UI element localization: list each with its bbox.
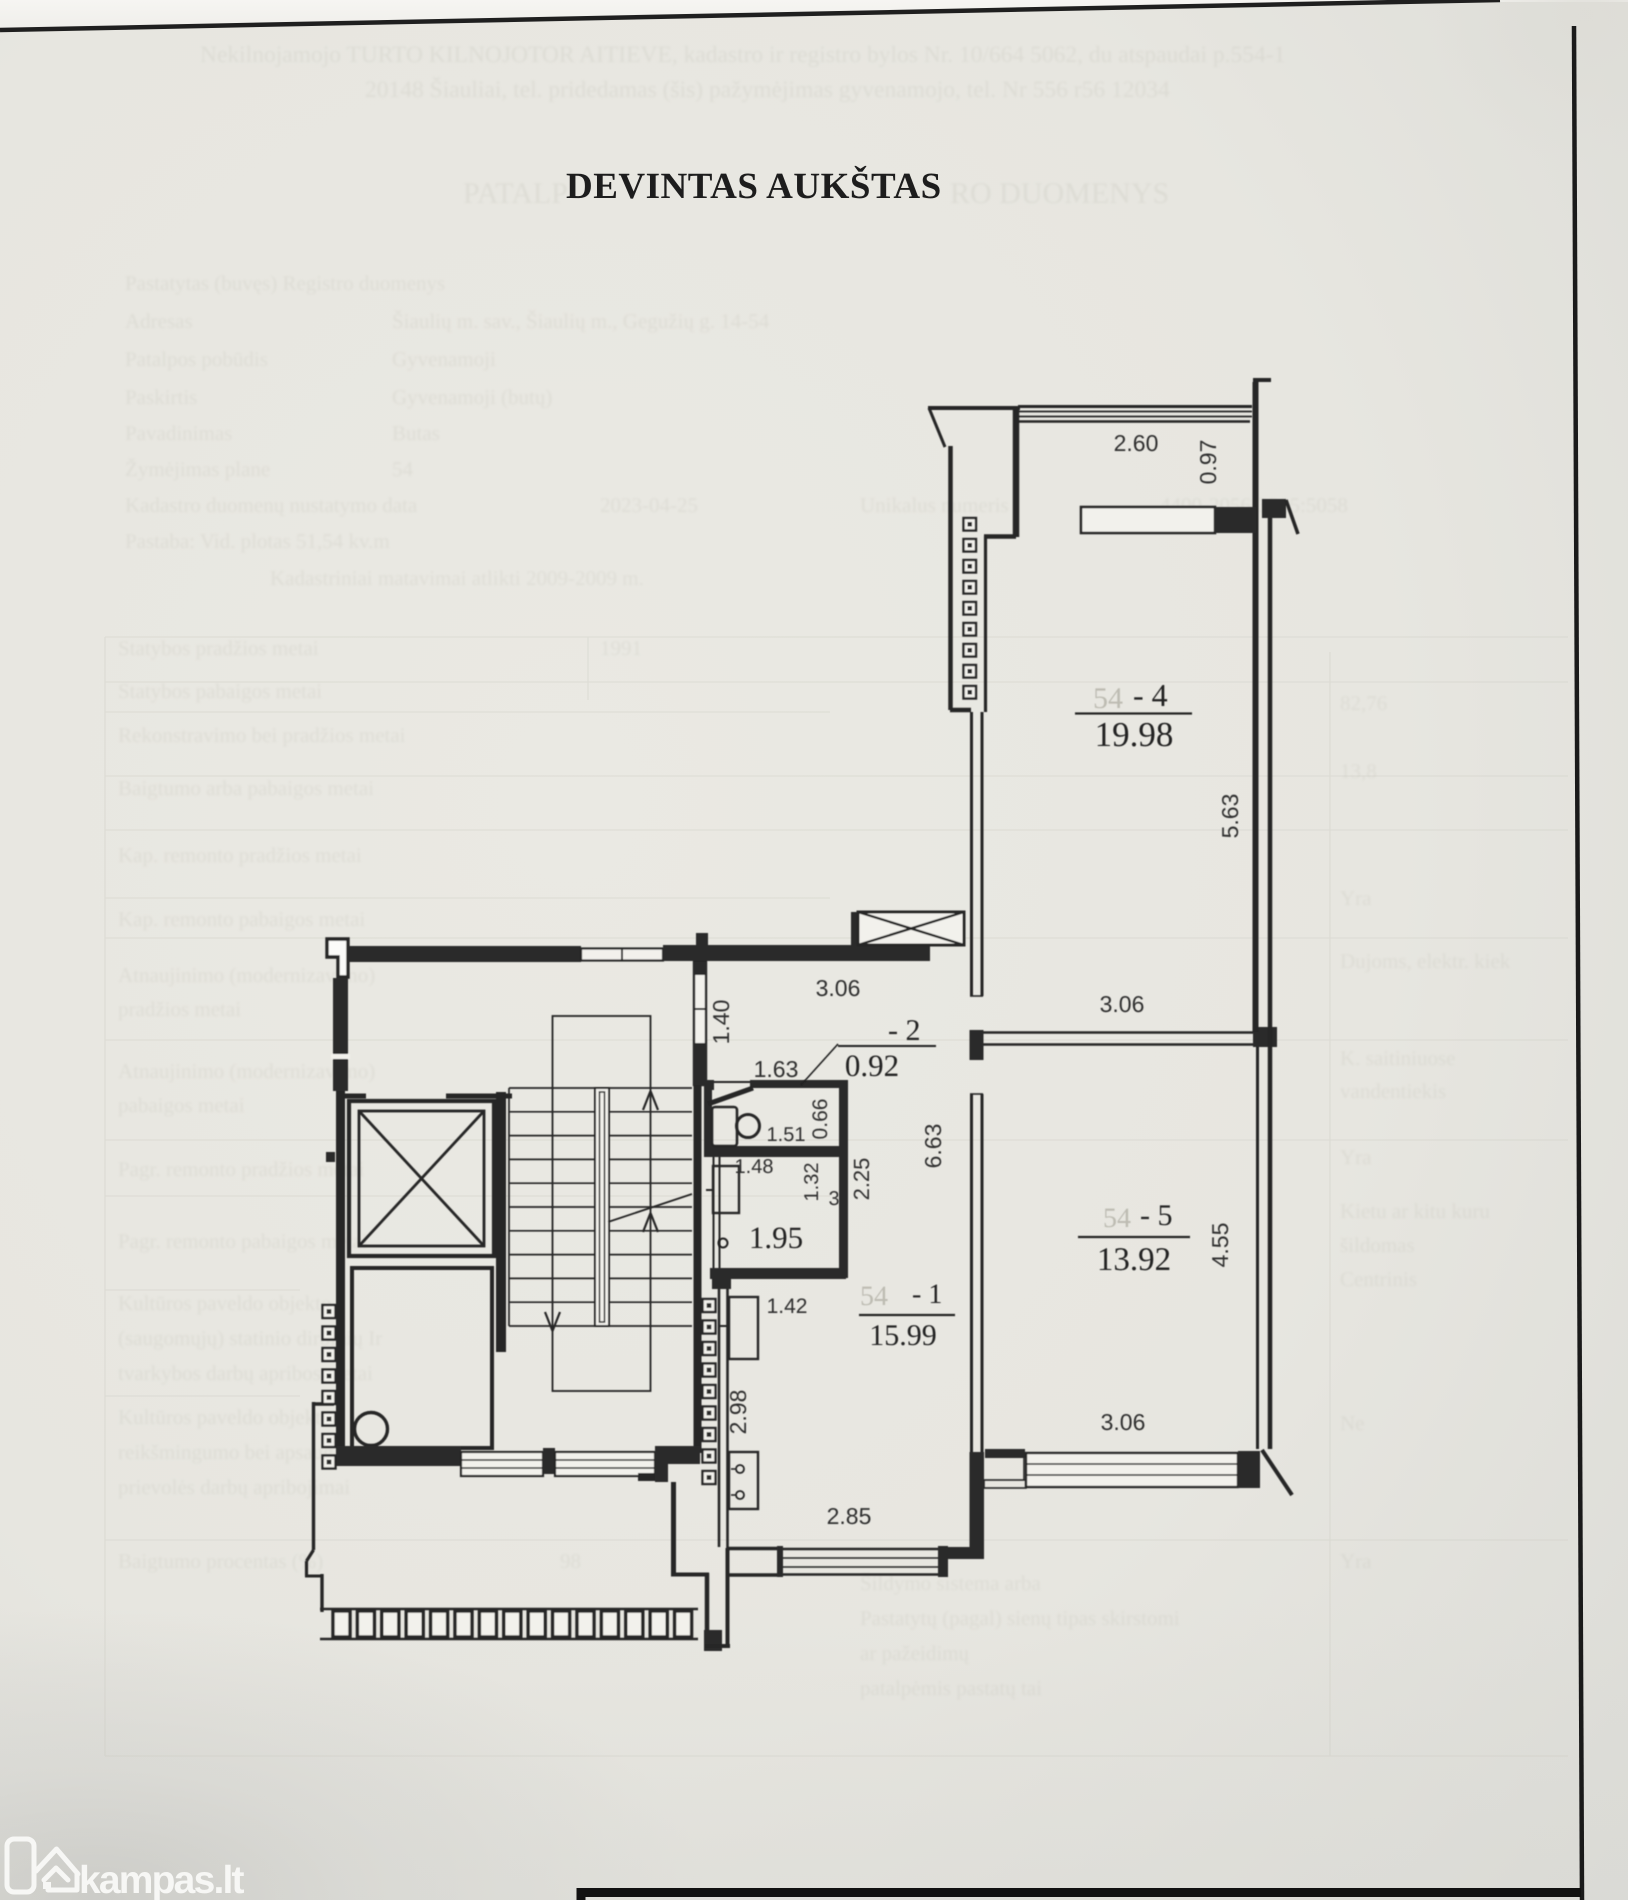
svg-text:98: 98 <box>560 1549 581 1573</box>
svg-text:1.95: 1.95 <box>749 1220 803 1255</box>
svg-text:15.99: 15.99 <box>869 1319 937 1352</box>
svg-text:1.48: 1.48 <box>735 1156 774 1178</box>
svg-text:82,76: 82,76 <box>1340 691 1387 715</box>
svg-text:1.42: 1.42 <box>767 1295 808 1318</box>
svg-text:20148 Šiauliai, tel. pridedama: 20148 Šiauliai, tel. pridedamas (šis) pa… <box>365 76 1170 103</box>
svg-text:13,8: 13,8 <box>1340 759 1377 783</box>
svg-text:- 5: - 5 <box>1140 1199 1173 1232</box>
svg-text:Baigtumo procentas (%): Baigtumo procentas (%) <box>118 1549 323 1573</box>
svg-text:Kap. remonto pabaigos metai: Kap. remonto pabaigos metai <box>118 907 365 931</box>
svg-text:Ne: Ne <box>1340 1411 1365 1435</box>
svg-text:0.97: 0.97 <box>1195 440 1221 485</box>
svg-text:Butas: Butas <box>392 421 440 445</box>
svg-text:- 1: - 1 <box>912 1279 942 1310</box>
svg-text:prievolės darbų apribojimai: prievolės darbų apribojimai <box>118 1475 350 1499</box>
svg-text:Pavadinimas: Pavadinimas <box>125 421 232 445</box>
svg-text:Baigtumo arba pabaigos metai: Baigtumo arba pabaigos metai <box>118 776 374 800</box>
svg-text:Statybos pradžios metai: Statybos pradžios metai <box>118 636 319 660</box>
svg-text:Adresas: Adresas <box>125 309 193 333</box>
svg-text:K. saitiniuose: K. saitiniuose <box>1340 1046 1456 1070</box>
svg-text:ar pažeidimų: ar pažeidimų <box>860 1641 970 1665</box>
svg-text:Žymėjimas plane: Žymėjimas plane <box>125 457 270 481</box>
svg-text:Kietu ar kitu kuru: Kietu ar kitu kuru <box>1340 1199 1490 1223</box>
svg-text:pradžios metai: pradžios metai <box>118 997 241 1021</box>
svg-text:19.98: 19.98 <box>1095 715 1174 754</box>
svg-text:2.85: 2.85 <box>827 1503 872 1529</box>
svg-text:2.60: 2.60 <box>1114 430 1159 456</box>
svg-text:Yra: Yra <box>1340 1145 1372 1169</box>
svg-text:Kadastro duomenų nustatymo dat: Kadastro duomenų nustatymo data <box>125 493 418 517</box>
svg-text:54: 54 <box>1103 1203 1131 1234</box>
svg-text:3.06: 3.06 <box>1101 1409 1146 1435</box>
svg-text:Patalpos pobūdis: Patalpos pobūdis <box>125 347 268 371</box>
svg-text:54: 54 <box>1093 682 1123 715</box>
svg-text:Kap. remonto pradžios metai: Kap. remonto pradžios metai <box>118 843 362 867</box>
svg-text:Rekonstravimo bei pradžios met: Rekonstravimo bei pradžios metai <box>118 723 406 747</box>
svg-text:- 4: - 4 <box>1133 677 1168 713</box>
svg-text:RO DUOMENYS: RO DUOMENYS <box>950 177 1169 210</box>
svg-text:DEVINTAS AUKŠTAS: DEVINTAS AUKŠTAS <box>566 165 942 207</box>
svg-text:1.63: 1.63 <box>754 1056 799 1082</box>
svg-text:Yra: Yra <box>1340 1549 1372 1573</box>
svg-text:Dujoms, elektr. kiek: Dujoms, elektr. kiek <box>1340 949 1511 973</box>
svg-text:2.98: 2.98 <box>725 1390 751 1435</box>
svg-text:Gyvenamoji: Gyvenamoji <box>392 347 496 371</box>
svg-text:Kadastriniai matavimai atlikti: Kadastriniai matavimai atlikti 2009-2009… <box>270 566 644 590</box>
svg-text:Unikalus numeris: Unikalus numeris <box>860 493 1009 517</box>
svg-text:šildomas: šildomas <box>1340 1233 1415 1257</box>
svg-text:Kultūros paveldo objekto: Kultūros paveldo objekto <box>118 1291 331 1315</box>
svg-text:pabaigos metai: pabaigos metai <box>118 1093 245 1117</box>
svg-text:5.63: 5.63 <box>1217 794 1243 839</box>
svg-text:6.63: 6.63 <box>920 1124 946 1169</box>
svg-text:54: 54 <box>392 457 414 481</box>
svg-text:0.66: 0.66 <box>809 1099 832 1140</box>
svg-text:Kultūros paveldo objekto: Kultūros paveldo objekto <box>118 1405 331 1429</box>
svg-text:1.51: 1.51 <box>767 1124 806 1146</box>
svg-text:1.32: 1.32 <box>801 1163 823 1202</box>
svg-text:3.06: 3.06 <box>1100 991 1145 1017</box>
svg-text:vandentiekis: vandentiekis <box>1340 1079 1446 1103</box>
svg-text:2.25: 2.25 <box>849 1158 874 1201</box>
svg-text:patalpėmis pastatų tai: patalpėmis pastatų tai <box>860 1676 1042 1700</box>
svg-text:1.40: 1.40 <box>708 1000 734 1045</box>
svg-text:2023-04-25: 2023-04-25 <box>600 493 698 517</box>
svg-text:kampas.lt: kampas.lt <box>79 1859 245 1900</box>
svg-text:Pastaba: Vid. plotas 51,54 kv.: Pastaba: Vid. plotas 51,54 kv.m <box>125 529 390 553</box>
svg-text:3: 3 <box>828 1188 839 1210</box>
svg-text:54: 54 <box>860 1281 888 1312</box>
svg-text:13.92: 13.92 <box>1097 1242 1171 1278</box>
svg-text:Paskirtis: Paskirtis <box>125 385 197 409</box>
svg-text:4.55: 4.55 <box>1207 1223 1233 1268</box>
svg-text:Nekilnojamojo TURTO KILNOJOTOR: Nekilnojamojo TURTO KILNOJOTOR AITIEVE, … <box>200 42 1285 68</box>
svg-text:1991: 1991 <box>600 636 642 660</box>
svg-text:3.06: 3.06 <box>816 975 861 1001</box>
svg-text:Pagr. remonto pabaigos metai: Pagr. remonto pabaigos metai <box>118 1229 368 1253</box>
svg-text:Centrinis: Centrinis <box>1340 1267 1417 1291</box>
svg-text:Pastatytų (pagal) sienų tipas: Pastatytų (pagal) sienų tipas skirstomi <box>860 1606 1180 1630</box>
svg-text:Pastatytas (buvęs) Registro du: Pastatytas (buvęs) Registro duomenys <box>125 271 445 295</box>
svg-text:Yra: Yra <box>1340 886 1372 910</box>
svg-text:0.92: 0.92 <box>845 1048 899 1083</box>
svg-text:Gyvenamoji (butų): Gyvenamoji (butų) <box>392 385 552 409</box>
svg-text:Šiaulių m. sav., Šiaulių m., G: Šiaulių m. sav., Šiaulių m., Gegužių g. … <box>392 309 770 333</box>
svg-text:PATALP: PATALP <box>463 177 568 210</box>
svg-text:- 2: - 2 <box>888 1014 921 1047</box>
